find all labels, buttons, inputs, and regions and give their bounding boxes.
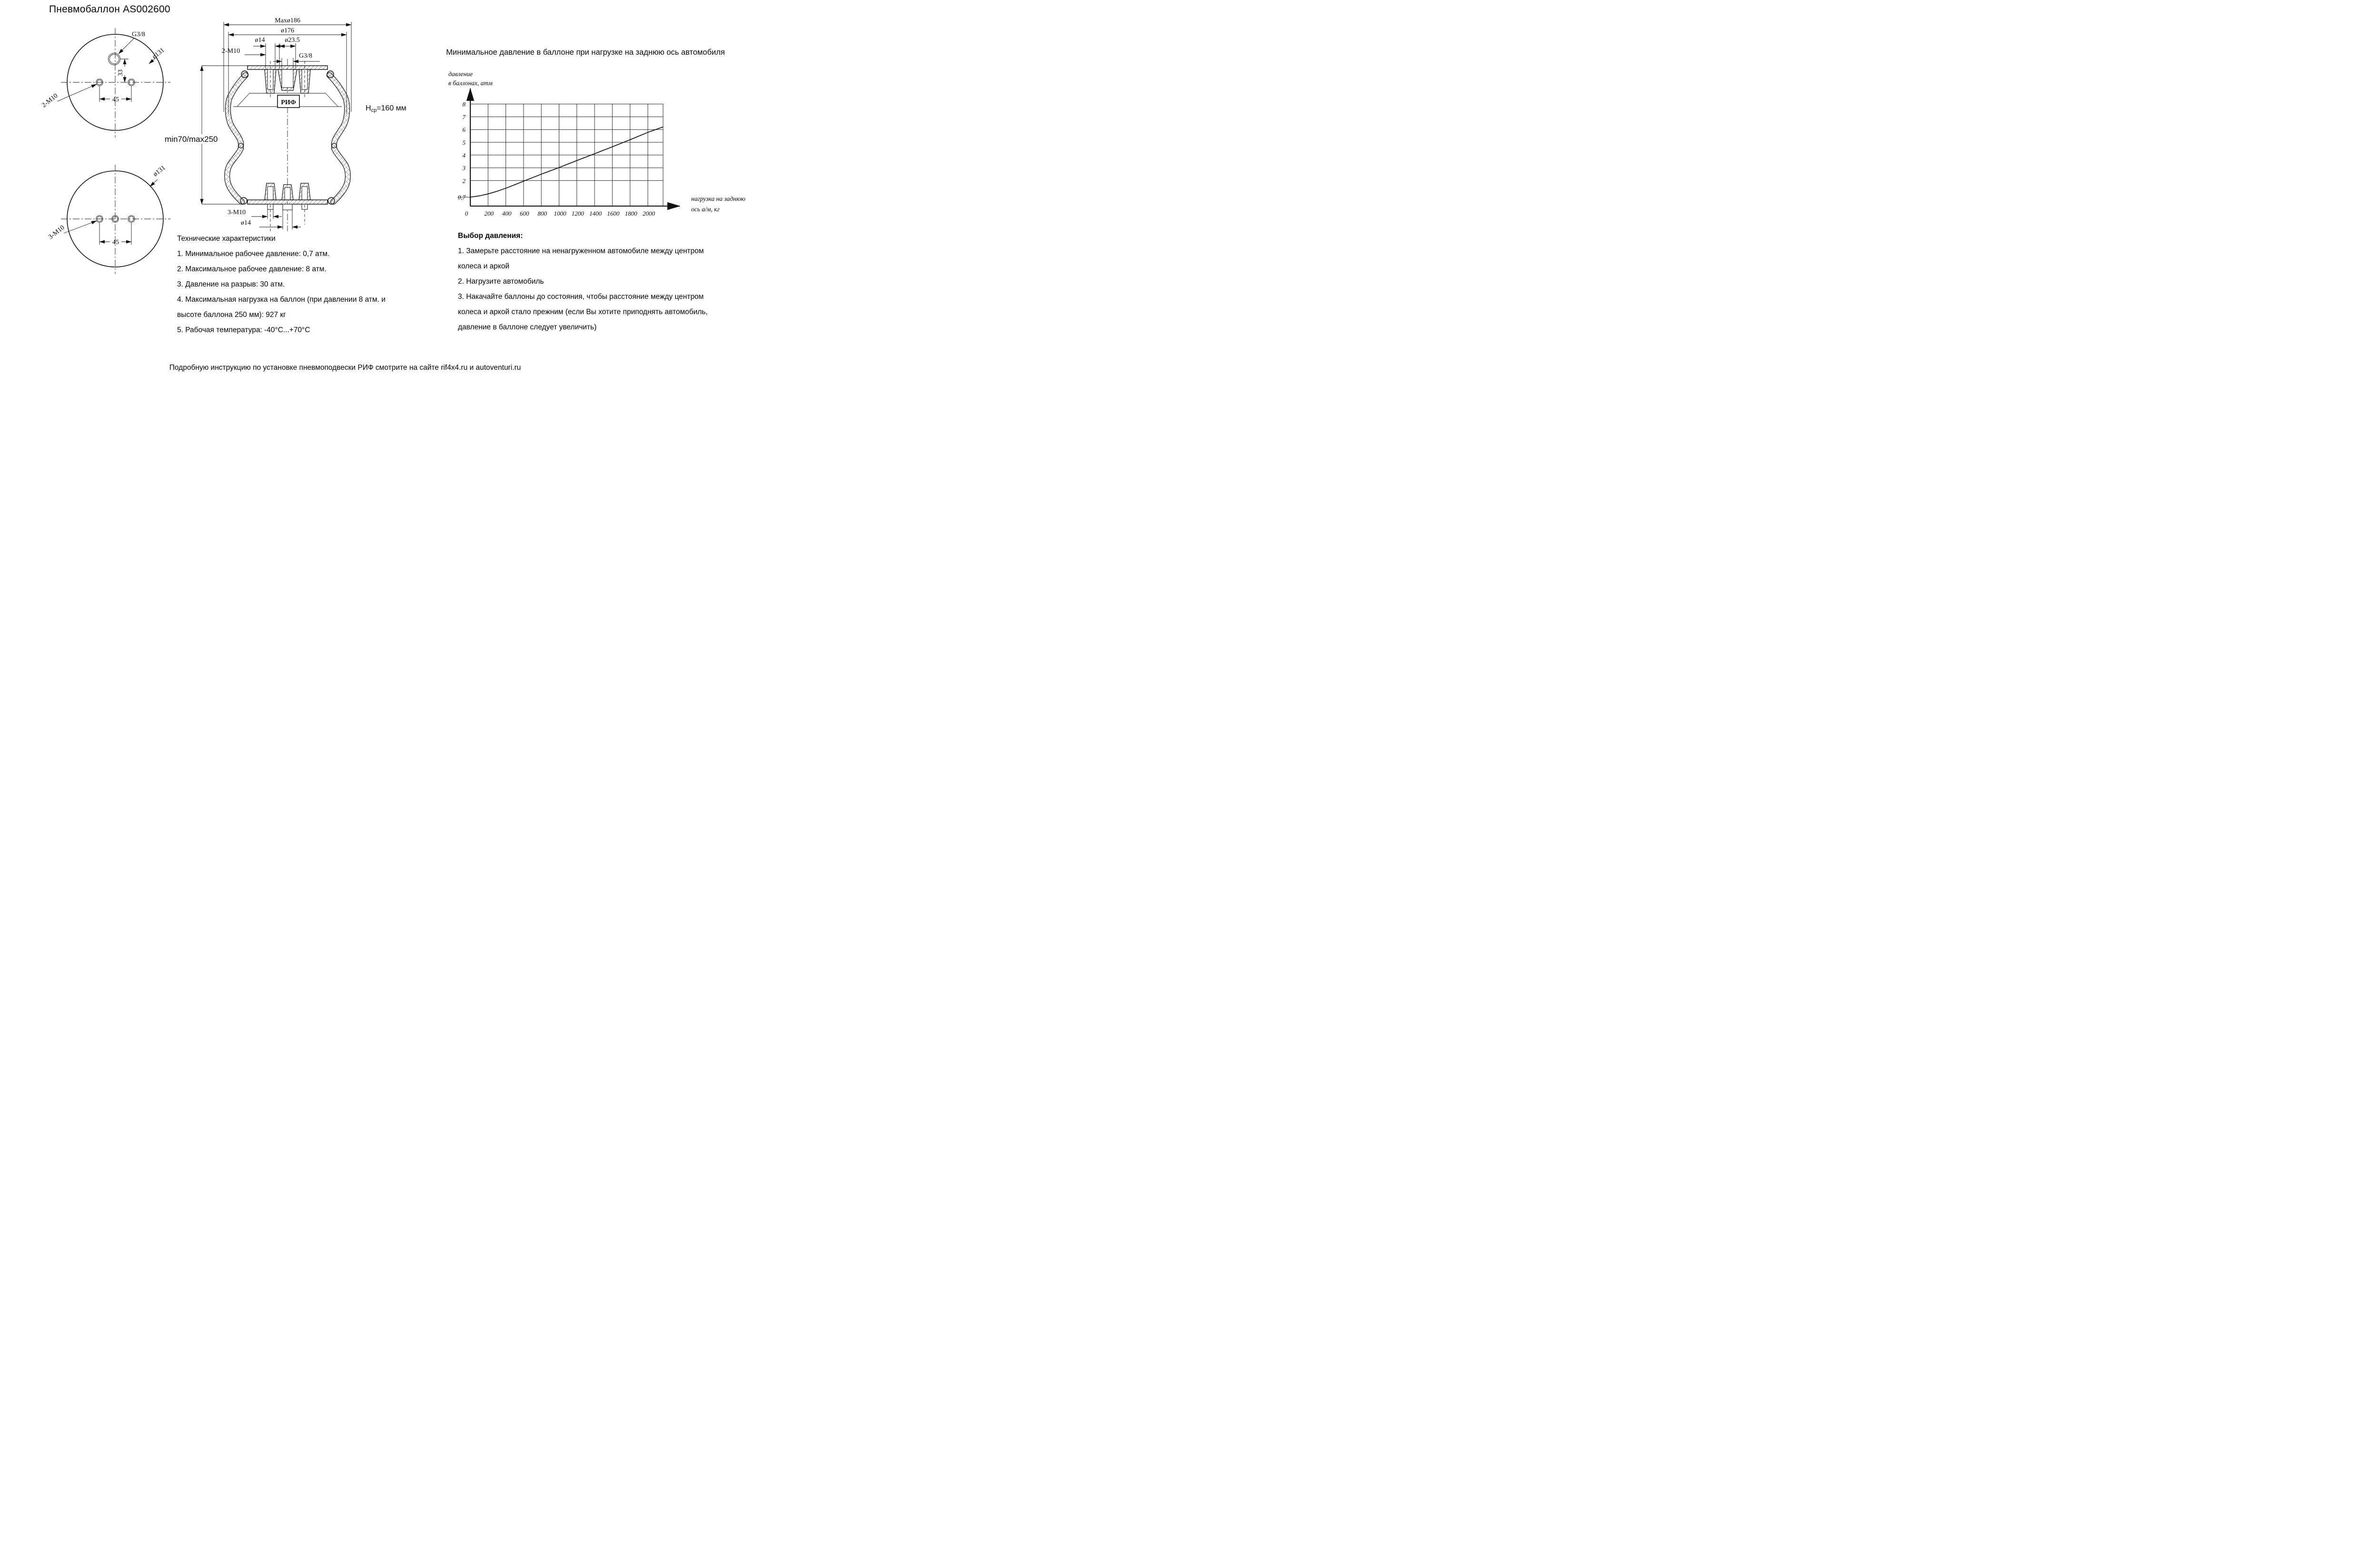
pressure-curve — [470, 127, 663, 197]
pressure-line: давление в баллоне следует увеличить) — [458, 320, 708, 335]
x-tick-label: 400 — [502, 210, 512, 217]
chart-grid-and-curve: 87654320,7020040060080010001200140016001… — [458, 101, 663, 217]
dim-max-label: Maxø186 — [275, 17, 300, 24]
y-tick-label: 2 — [463, 177, 466, 184]
studs-label: 3-M10 — [47, 224, 66, 241]
dim-14-top-label: ø14 — [255, 37, 265, 44]
pressure-line: 1. Замерьте расстояние на ненагруженном … — [458, 244, 708, 259]
air-port-hole — [109, 53, 120, 65]
y-tick-label: 8 — [463, 101, 466, 108]
dim-2m10-label: 2-M10 — [222, 48, 240, 55]
dim-45-bottom-view: 45 — [99, 223, 131, 246]
pressure-line: колеса и аркой — [458, 259, 708, 274]
dim-45-top-view: 45 — [99, 86, 131, 103]
pressure-line: колеса и аркой стало прежним (если Вы хо… — [458, 305, 708, 320]
x-axis-label-line2: ось а/м, кг — [691, 206, 720, 213]
studs-label: 2-M10 — [40, 92, 59, 109]
pressure-chart: 87654320,7020040060080010001200140016001… — [448, 70, 745, 217]
dim-14-bottom: ø14 — [241, 210, 301, 229]
specs-block: Технические характеристики 1. Минимально… — [177, 231, 386, 338]
y-tick-label: 7 — [463, 113, 466, 120]
port-leader-line — [119, 38, 134, 54]
bottom-plate-view: ø131 45 3-M10 — [47, 164, 170, 274]
dim-23-5-label: ø23.5 — [285, 37, 300, 44]
x-tick-label: 1000 — [554, 210, 567, 217]
spec-line: высоте баллона 250 мм): 927 кг — [177, 307, 386, 323]
x-tick-label: 1800 — [625, 210, 638, 217]
dim-14-top: ø14 — [253, 37, 278, 69]
port-label: G3/8 — [132, 31, 145, 38]
x-tick-label: 1400 — [589, 210, 602, 217]
dim-14-bottom-label: ø14 — [241, 219, 251, 227]
spec-line: 4. Максимальная нагрузка на баллон (при … — [177, 292, 386, 307]
datasheet-page: Пневмобаллон AS002600 — [0, 0, 803, 385]
section-view: РИФ — [164, 17, 407, 231]
brand-plate: РИФ — [278, 95, 299, 108]
pressure-selection-block: Выбор давления: 1. Замерьте расстояние н… — [458, 228, 708, 335]
dim-45-label: 45 — [112, 239, 119, 246]
footer-note: Подробную инструкцию по установке пневмо… — [109, 364, 581, 372]
x-tick-label: 2000 — [643, 210, 655, 217]
x-tick-label: 200 — [485, 210, 494, 217]
y-axis-label-line2: в баллонах, атм — [448, 79, 493, 87]
dim-176-label: ø176 — [281, 27, 294, 34]
x-tick-label: 0 — [465, 210, 468, 217]
bellows-wall-right — [329, 75, 348, 202]
top-plate-view: G3/8 ø131 33 45 2-M10 — [40, 28, 170, 138]
height-label: Нср=160 мм — [366, 104, 407, 113]
bottom-plate-section — [248, 183, 327, 231]
spec-line: 5. Рабочая температура: -40°С...+70°С — [177, 323, 386, 338]
y-tick-label: 3 — [462, 165, 466, 172]
y-tick-label: 6 — [463, 126, 466, 133]
travel-label: min70/max250 — [165, 135, 218, 144]
spec-line: 2. Максимальное рабочее давление: 8 атм. — [177, 262, 386, 277]
chart-title: Минимальное давление в баллоне при нагру… — [428, 48, 743, 57]
dim-g38-label: G3/8 — [299, 52, 312, 59]
spec-line: 1. Минимальное рабочее давление: 0,7 атм… — [177, 247, 386, 262]
pressure-selection-heading: Выбор давления: — [458, 228, 708, 244]
x-axis-label-line1: нагрузка на заднюю — [691, 195, 745, 202]
stud-tip-center — [283, 204, 292, 210]
pressure-line: 2. Нагрузите автомобиль — [458, 274, 708, 289]
x-tick-label: 1600 — [607, 210, 620, 217]
pressure-line: 3. Накачайте баллоны до состояния, чтобы… — [458, 289, 708, 305]
specs-heading: Технические характеристики — [177, 231, 386, 247]
dim-2m10: 2-M10 — [222, 48, 266, 55]
dim-33-label: 33 — [117, 69, 124, 76]
diameter-label: ø131 — [151, 47, 166, 60]
y-tick-label: 5 — [463, 139, 466, 146]
studs-leader-line — [57, 84, 97, 101]
spec-line: 3. Давление на разрыв: 30 атм. — [177, 277, 386, 292]
dim-45-label: 45 — [112, 96, 119, 103]
y-axis-label-line1: давление — [448, 70, 473, 78]
stud-hole-right — [128, 79, 135, 86]
studs-leader-line — [64, 221, 97, 233]
diameter-label: ø131 — [152, 164, 167, 178]
brand-label: РИФ — [281, 99, 296, 106]
x-tick-label: 1200 — [572, 210, 585, 217]
x-tick-label: 800 — [537, 210, 547, 217]
dim-3m10: 3-M10 — [228, 208, 282, 219]
stud-hole-right — [128, 216, 135, 222]
diameter-leader-line — [150, 179, 158, 187]
dim-23-5: ø23.5 — [279, 37, 300, 69]
y-tick-label: 0,7 — [458, 194, 466, 201]
x-tick-label: 600 — [520, 210, 529, 217]
y-tick-label: 4 — [463, 152, 466, 159]
dim-3m10-label: 3-M10 — [228, 209, 246, 216]
